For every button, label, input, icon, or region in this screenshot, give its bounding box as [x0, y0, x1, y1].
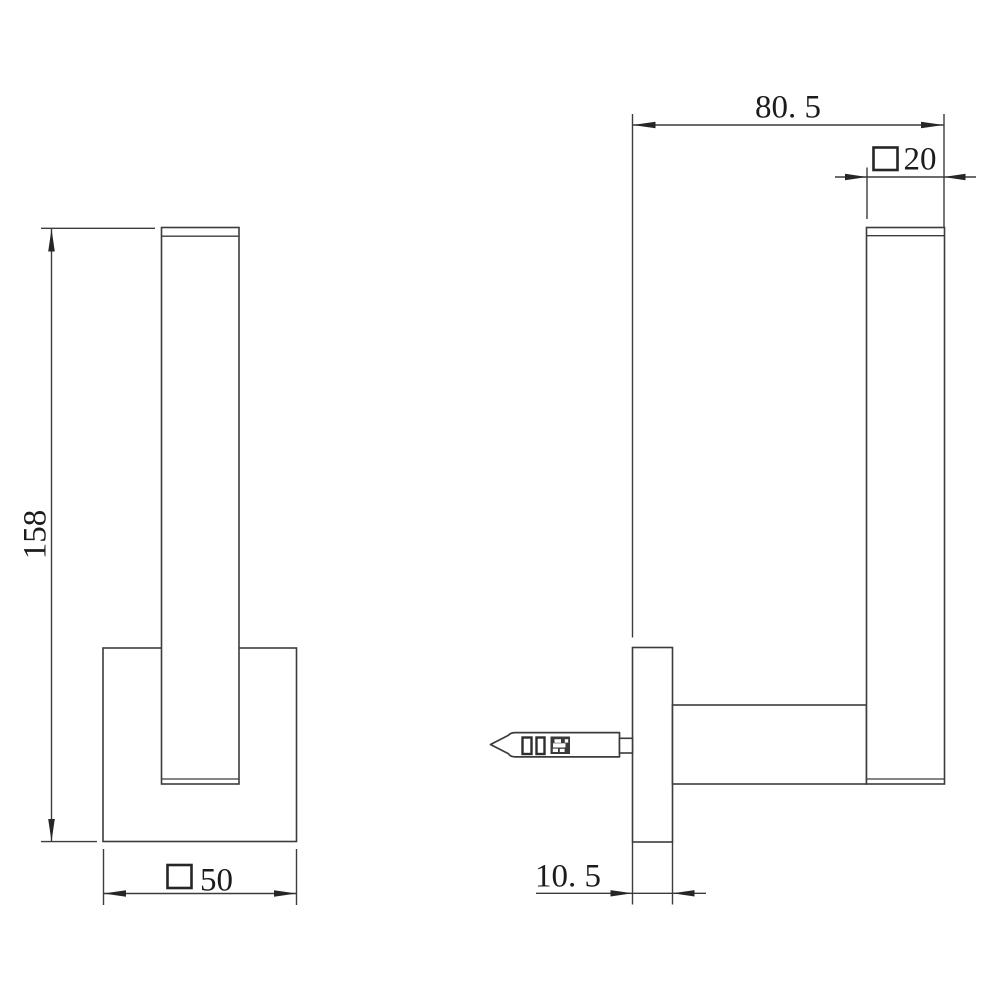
svg-text:50: 50 [200, 863, 233, 899]
svg-text:10. 5: 10. 5 [535, 859, 601, 895]
svg-text:20: 20 [904, 142, 937, 178]
svg-text:158: 158 [18, 510, 54, 560]
svg-text:80. 5: 80. 5 [755, 90, 821, 126]
